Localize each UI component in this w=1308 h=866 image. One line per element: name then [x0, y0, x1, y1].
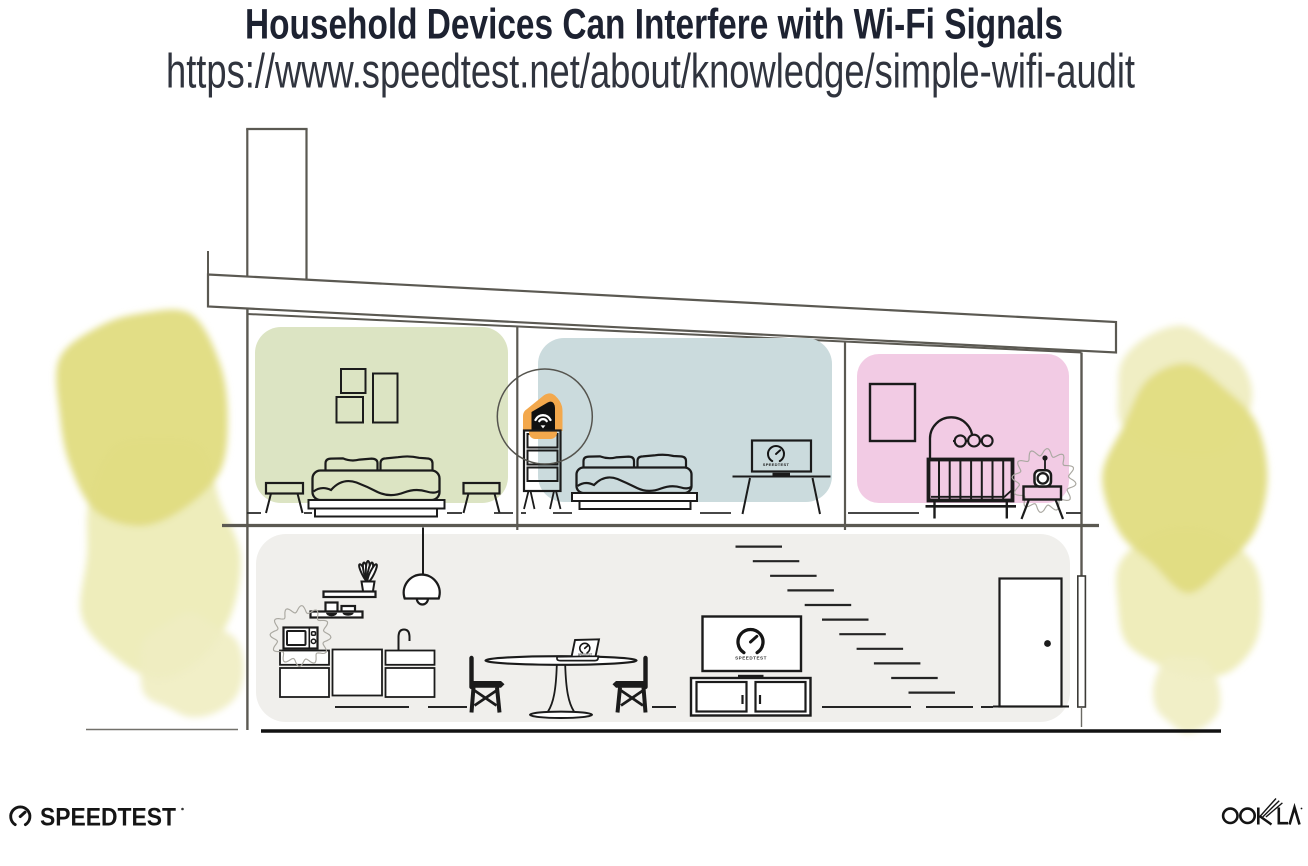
- svg-text:SPEEDTEST: SPEEDTEST: [735, 656, 767, 661]
- svg-text:SPEEDTEST: SPEEDTEST: [763, 462, 790, 467]
- svg-text:Household Devices Can Interfer: Household Devices Can Interfere with Wi-…: [245, 1, 1063, 49]
- svg-text:SPEEDTEST: SPEEDTEST: [40, 804, 176, 832]
- svg-text:https://www.speedtest.net/abou: https://www.speedtest.net/about/knowledg…: [166, 46, 1135, 99]
